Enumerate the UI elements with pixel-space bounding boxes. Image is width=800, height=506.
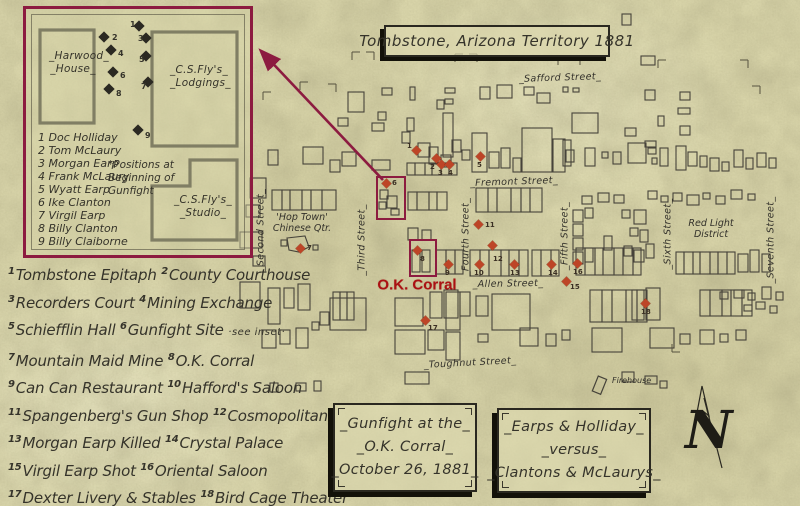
inset-marker-number-1: 1 — [130, 20, 136, 29]
legend-entry-number: 9 — [8, 379, 15, 390]
versus-plaque: _Earps & Holliday_ _versus_ _Clantons & … — [497, 408, 651, 493]
site-marker-number-17: 17 — [428, 324, 438, 332]
map-title-box: Tombstone, Arizona Territory 1881 — [384, 25, 610, 57]
legend-line-3: 5Schiefflin Hall 6Gunfight Site ·see ins… — [8, 315, 334, 346]
corner-mark — [502, 413, 509, 420]
legend-line-8: 15Virgil Earp Shot 16Oriental Saloon — [8, 456, 334, 484]
inset-marker-number-9: 9 — [145, 131, 151, 140]
site-marker-number-2: 2 — [430, 163, 435, 171]
inset-roster-entry-2: 2 Tom McLaury — [38, 144, 129, 157]
ok-corral-label: O.K. Corral — [377, 277, 456, 294]
legend-entry-label: Can Can Restaurant — [16, 379, 168, 397]
legend-entry-label: Hafford's Saloon — [182, 379, 302, 397]
inset-roster-entry-8: 8 Billy Clanton — [38, 222, 129, 235]
inset-marker-number-2: 2 — [112, 33, 118, 42]
legend-entry-number: 8 — [168, 352, 175, 363]
versus-plaque-line3: _Clantons & McLaurys_ — [487, 462, 661, 485]
area-label-redlight: Red Light District — [688, 218, 733, 240]
inset-roster-entry-9: 9 Billy Claiborne — [38, 235, 129, 248]
site-marker-number-12: 12 — [493, 255, 503, 263]
firehouse-label: Firehouse — [612, 376, 651, 385]
legend-line-9: 17Dexter Livery & Stables 18Bird Cage Th… — [8, 483, 334, 506]
legend-entry-label: Gunfight Site — [128, 321, 229, 339]
compass-north-letter: N — [683, 400, 735, 461]
street-label-seventh-street: _Seventh Street_ — [766, 196, 777, 283]
street-label-second-street: _Second Street_ — [256, 189, 267, 272]
harwood-house-label: _Harwood__House_ — [49, 50, 97, 76]
map-legend: 1Tombstone Epitaph 2County Courthouse 3R… — [8, 260, 334, 506]
site-marker-number-7: 7 — [307, 244, 312, 252]
legend-entry-number: 1 — [8, 266, 15, 277]
legend-entry-number: 5 — [8, 321, 15, 332]
legend-entry-label: Crystal Palace — [180, 434, 284, 452]
legend-entry-label: Spangenberg's Gun Shop — [23, 407, 213, 425]
site-marker-number-1: 1 — [407, 142, 412, 150]
legend-entry-label: Virgil Earp Shot — [23, 462, 141, 480]
corner-mark — [502, 481, 509, 488]
site-marker-number-16: 16 — [573, 268, 583, 276]
legend-entry-number: 17 — [8, 489, 22, 500]
legend-entry-label: Mountain Maid Mine — [16, 352, 168, 370]
inset-roster-entry-7: 7 Virgil Earp — [38, 209, 129, 222]
site-marker-number-13: 13 — [510, 269, 520, 277]
gunfight-plaque-line3: _October 26, 1881_ — [331, 459, 478, 482]
inset-positions-note: *Positions at Beginning of Gunfight — [108, 159, 174, 198]
legend-line-6: 11Spangenberg's Gun Shop 12Cosmopolitan — [8, 401, 334, 429]
legend-entry-label: County Courthouse — [169, 266, 310, 284]
inset-marker-number-7: 7 — [141, 82, 147, 91]
legend-line-5: 9Can Can Restaurant 10Hafford's Saloon — [8, 373, 334, 401]
versus-plaque-line1: _Earps & Holliday_ — [504, 416, 644, 439]
legend-entry-label: Dexter Livery & Stables — [23, 489, 201, 506]
ok-corral-highlight-box — [409, 239, 437, 277]
legend-entry-number: 10 — [167, 379, 181, 390]
legend-entry-number: 6 — [120, 321, 127, 332]
site-marker-number-3: 3 — [438, 169, 443, 177]
legend-entry-number: 14 — [165, 434, 179, 445]
inset-marker-number-3: 3 — [138, 34, 144, 43]
site-marker-number-5: 5 — [477, 161, 482, 169]
site-marker-number-15: 15 — [570, 283, 580, 291]
cs-flys-studio-label: _C.S.Fly's__Studio_ — [174, 194, 232, 220]
legend-line-1: 1Tombstone Epitaph 2County Courthouse — [8, 260, 334, 288]
gunfight-plaque-line2: _O.K. Corral_ — [357, 436, 453, 459]
street-label-sixth-street: _Sixth Street_ — [663, 198, 674, 269]
site-marker-number-11: 11 — [485, 221, 495, 229]
corner-mark — [338, 480, 345, 487]
inset-roster-entry-1: 1 Doc Holliday — [38, 131, 129, 144]
gunfight-plaque-line1: _Gunfight at the_ — [340, 413, 470, 436]
legend-line-7: 13Morgan Earp Killed 14Crystal Palace — [8, 428, 334, 456]
inset-marker-number-5: 5 — [139, 55, 145, 64]
legend-entry-note: ·see inset· — [228, 327, 285, 338]
legend-entry-number: 15 — [8, 462, 22, 473]
legend-entry-label: Recorders Court — [16, 294, 140, 312]
inset-marker-number-4: 4 — [118, 49, 124, 58]
legend-entry-label: Cosmopolitan — [228, 407, 328, 425]
street-label-third-street: _Third Street_ — [357, 204, 368, 276]
legend-line-4: 7Mountain Maid Mine 8O.K. Corral — [8, 346, 334, 374]
legend-entry-number: 11 — [8, 407, 22, 418]
corner-mark — [639, 481, 646, 488]
street-label-allen-street: _Allen Street_ — [472, 278, 543, 290]
cs-flys-lodgings-label: _C.S.Fly's__Lodgings_ — [170, 64, 228, 90]
legend-entry-label: Schiefflin Hall — [16, 321, 120, 339]
corner-mark — [465, 480, 472, 487]
site-marker-number-14: 14 — [548, 269, 558, 277]
legend-entry-label: O.K. Corral — [176, 352, 254, 370]
legend-entry-label: Morgan Earp Killed — [23, 434, 165, 452]
legend-entry-number: 13 — [8, 434, 22, 445]
legend-entry-number: 12 — [213, 407, 227, 418]
legend-entry-label: Mining Exchange — [147, 294, 272, 312]
inset-marker-number-6: 6 — [120, 71, 126, 80]
legend-entry-number: 4 — [139, 294, 146, 305]
area-label-hoptown: 'Hop Town' Chinese Qtr. — [273, 212, 331, 234]
gunfight-plaque: _Gunfight at the_ _O.K. Corral_ _October… — [333, 403, 477, 492]
legend-entry-number: 2 — [161, 266, 168, 277]
legend-entry-number: 7 — [8, 352, 15, 363]
site-marker-number-10: 10 — [474, 269, 484, 277]
corner-mark — [338, 408, 345, 415]
legend-line-2: 3Recorders Court 4Mining Exchange — [8, 288, 334, 316]
site-marker-number-4: 4 — [448, 169, 453, 177]
gunfight-inset: _Harwood__House_ _C.S.Fly's__Lodgings_ _… — [23, 6, 253, 258]
legend-entry-number: 18 — [200, 489, 214, 500]
site-marker-number-18: 18 — [641, 308, 651, 316]
corner-mark — [639, 413, 646, 420]
street-label-fifth-street: _Fifth Street_ — [560, 202, 571, 270]
tombstone-map: N Tombstone, Arizona Territory 1881 _Har… — [0, 0, 800, 506]
versus-plaque-line2: _versus_ — [542, 439, 607, 462]
legend-entry-label: Bird Cage Theater — [215, 489, 348, 506]
legend-entry-label: Oriental Saloon — [155, 462, 268, 480]
legend-entry-number: 3 — [8, 294, 15, 305]
map-title: Tombstone, Arizona Territory 1881 — [359, 32, 634, 50]
inset-marker-number-8: 8 — [116, 89, 122, 98]
gunfight-site-highlight-box — [376, 176, 406, 220]
legend-entry-number: 16 — [140, 462, 154, 473]
street-label-fourth-street: _Fourth Street_ — [461, 198, 472, 277]
legend-entry-label: Tombstone Epitaph — [16, 266, 161, 284]
corner-mark — [465, 408, 472, 415]
